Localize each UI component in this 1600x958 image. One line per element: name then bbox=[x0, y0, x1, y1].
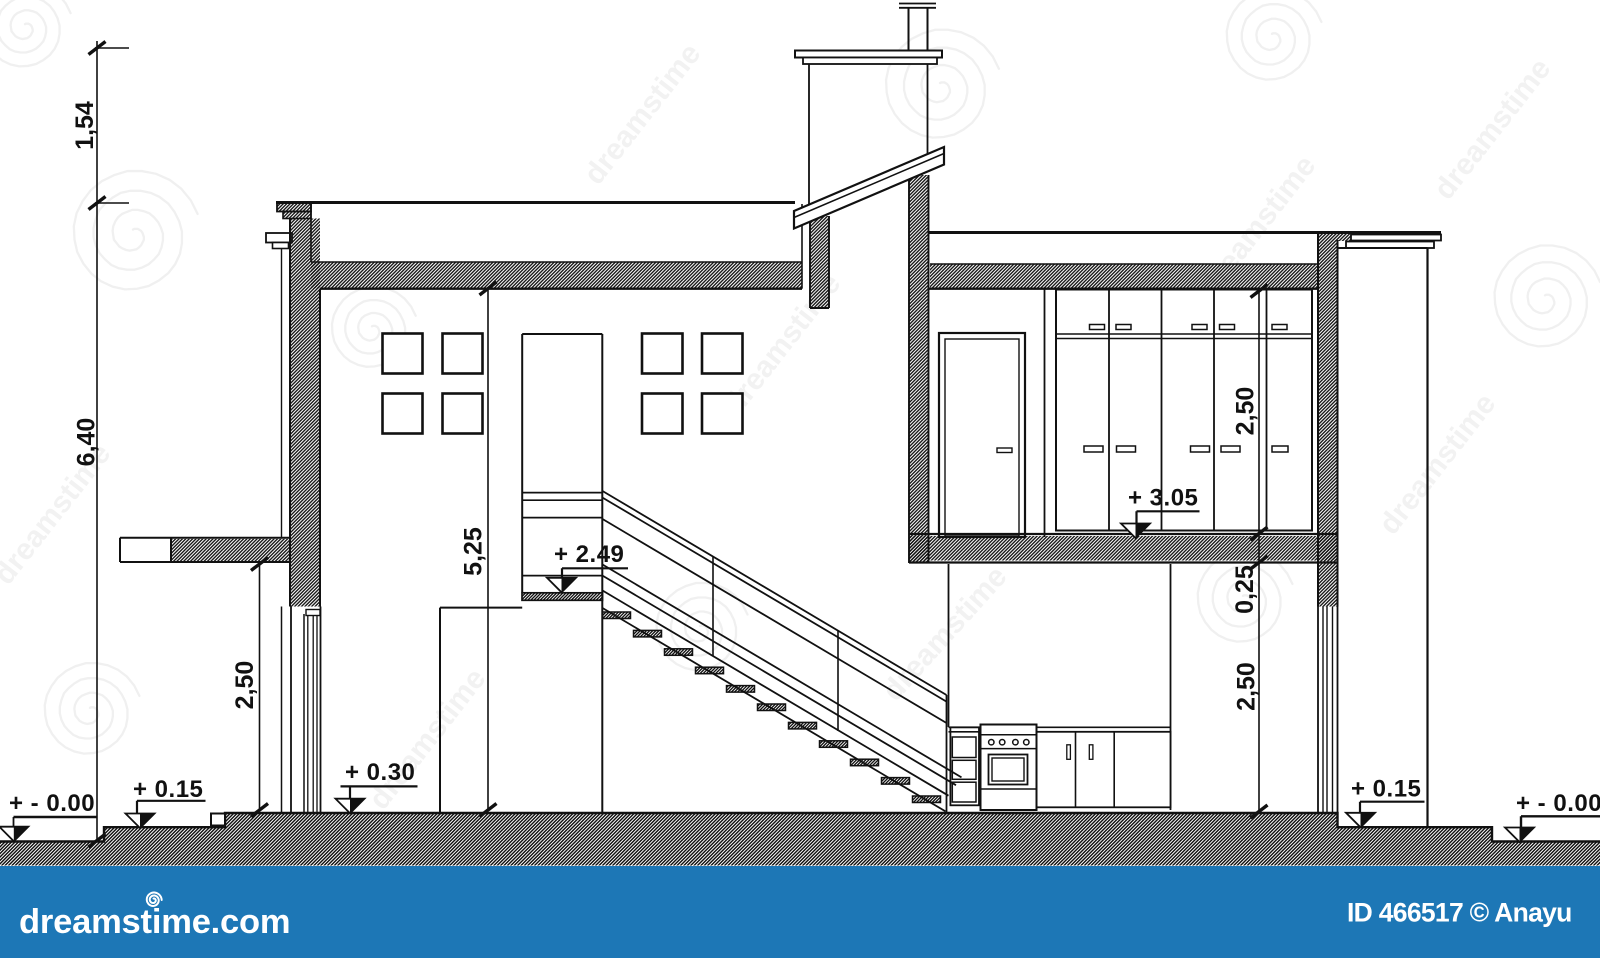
svg-text:1,54: 1,54 bbox=[71, 101, 99, 150]
svg-text:6,40: 6,40 bbox=[73, 418, 101, 467]
svg-text:2,50: 2,50 bbox=[231, 661, 259, 710]
svg-text:2,50: 2,50 bbox=[1233, 662, 1261, 711]
svg-text:ID 466517 © Anayu: ID 466517 © Anayu bbox=[1347, 898, 1572, 928]
svg-text:+ - 0.00: + - 0.00 bbox=[1516, 790, 1600, 817]
svg-text:+ 0.15: + 0.15 bbox=[133, 776, 203, 803]
svg-text:2,50: 2,50 bbox=[1232, 387, 1260, 436]
svg-text:5,25: 5,25 bbox=[460, 527, 488, 576]
svg-text:+ - 0.00: + - 0.00 bbox=[9, 790, 95, 817]
svg-text:+ 0.15: + 0.15 bbox=[1351, 776, 1421, 803]
svg-text:+ 0.30: + 0.30 bbox=[345, 759, 415, 786]
svg-text:+ 3.05: + 3.05 bbox=[1128, 485, 1198, 512]
svg-text:+ 2.49: + 2.49 bbox=[554, 541, 624, 568]
svg-text:dreamstime.com: dreamstime.com bbox=[19, 903, 290, 941]
svg-text:0,25: 0,25 bbox=[1231, 565, 1259, 614]
